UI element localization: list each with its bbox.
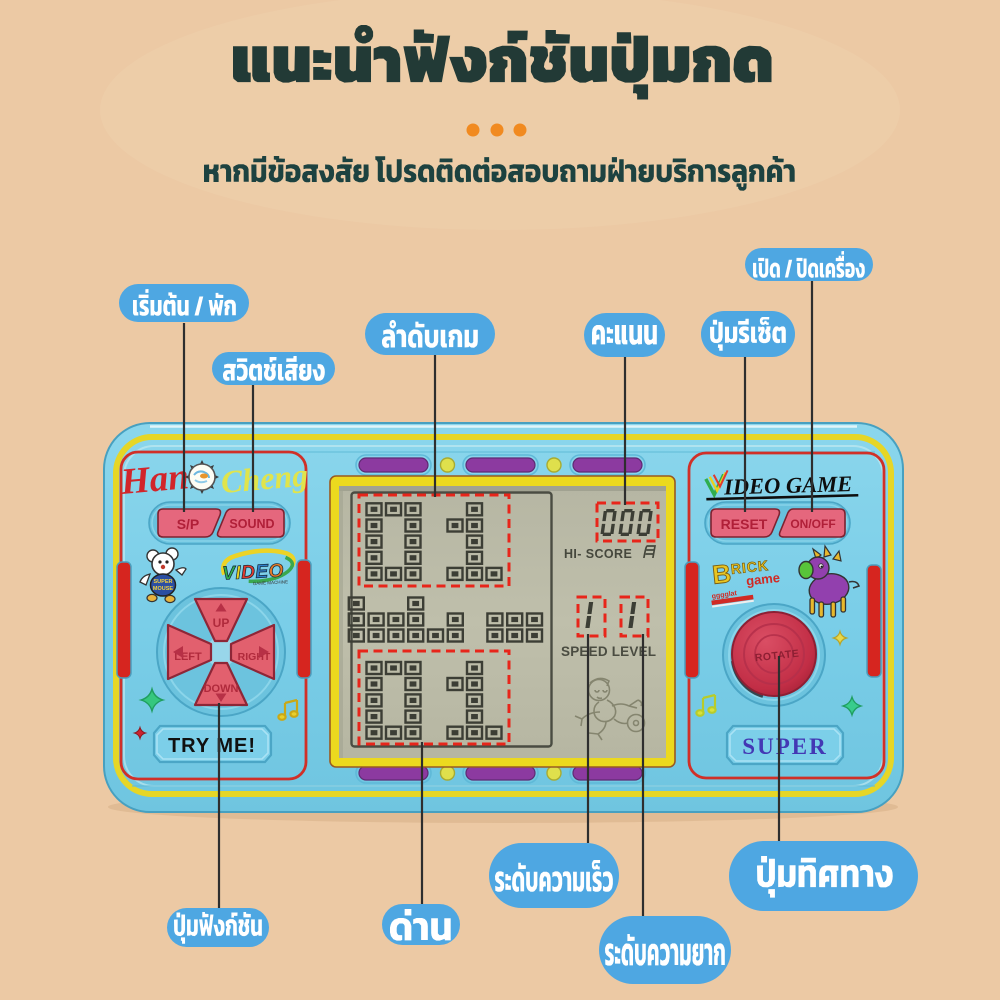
svg-text:UP: UP [213, 616, 230, 630]
svg-text:SUPER: SUPER [742, 734, 827, 759]
svg-text:Han: Han [118, 456, 190, 503]
svg-text:ON/OFF: ON/OFF [790, 517, 835, 531]
svg-text:S/P: S/P [177, 516, 200, 532]
svg-text:DOWN: DOWN [204, 683, 239, 695]
svg-text:HI- SCORE: HI- SCORE [564, 547, 632, 561]
svg-text:TRY ME!: TRY ME! [168, 735, 256, 757]
svg-text:Cheng: Cheng [219, 457, 309, 500]
svg-text:RESET: RESET [721, 516, 768, 532]
svg-text:SUPER: SUPER [154, 579, 173, 585]
svg-text:SOUND: SOUND [229, 517, 274, 531]
svg-text:MOUSE: MOUSE [153, 586, 174, 592]
